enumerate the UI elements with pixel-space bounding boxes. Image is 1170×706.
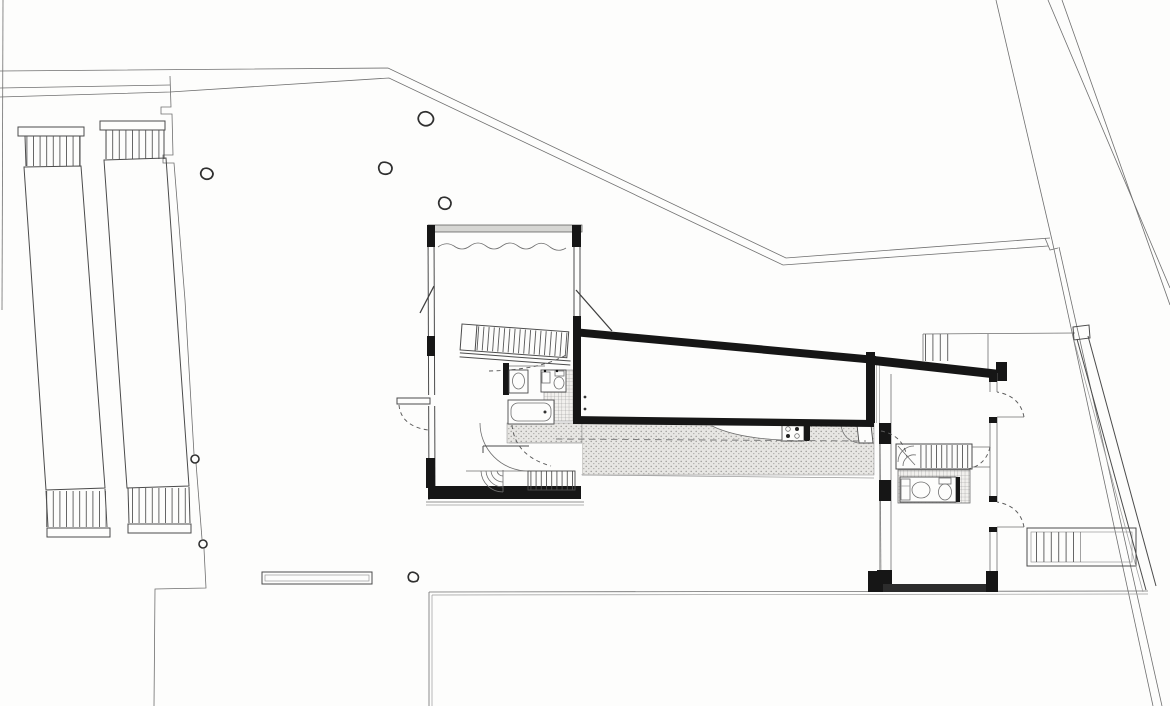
west-door <box>397 395 436 430</box>
kitchen-hob: kitchen hob <box>782 424 810 441</box>
main-stair: straight stair <box>460 324 573 365</box>
guest-bathroom: guest bathroom <box>898 470 970 503</box>
site-boundary: property boundary line <box>2 0 3 310</box>
east-door-1 <box>997 392 1024 417</box>
lower-exterior-stair: lower exterior stair <box>1027 528 1136 566</box>
floor-plan-drawing: property boundary line bent garden path … <box>0 0 1170 706</box>
casement-left <box>420 286 434 313</box>
boulders: boulders <box>201 112 451 582</box>
pergola-row-east: trellis row east <box>100 121 191 533</box>
fence-post <box>191 455 199 463</box>
garden-bench: garden bench <box>262 572 372 584</box>
fence-post <box>199 540 207 548</box>
garden-fence: garden fence with gate posts <box>154 76 207 706</box>
wc-unit: wc and hand basin <box>541 370 566 392</box>
gallery-deck: stippled gallery deck kitchen hob deck d… <box>507 423 874 478</box>
wardrobe-wave <box>438 243 566 250</box>
pergola-row-west: trellis row west <box>18 127 110 537</box>
street-diagonals: street edge diagonals <box>996 0 1170 706</box>
winder-spiral-stair: stair with winders <box>896 444 990 469</box>
stair-door-swing <box>968 447 990 469</box>
straight-lower-stair: straight lower stair <box>528 471 575 490</box>
lower-terrace-edge: lower terrace edge <box>429 591 1148 706</box>
washbasin: washbasin <box>509 370 528 393</box>
casement-right <box>576 290 612 331</box>
garden-path: bent garden path <box>0 68 1058 265</box>
bathtub: bathtub <box>508 400 554 424</box>
east-door-2 <box>997 502 1024 527</box>
floor-plan-canvas: property boundary line bent garden path … <box>0 0 1170 706</box>
